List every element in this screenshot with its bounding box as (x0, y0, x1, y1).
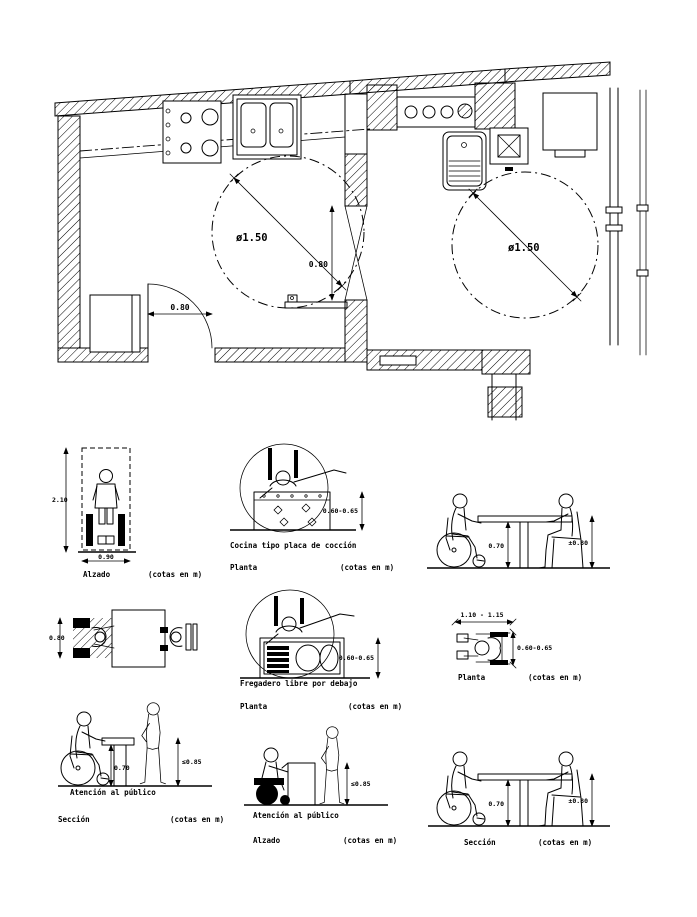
wheelchair-user (437, 752, 485, 825)
svg-text:0.70: 0.70 (488, 542, 504, 550)
open-door-leaf (285, 295, 347, 308)
figure-label: Sección (58, 815, 90, 824)
figure-label: Planta (230, 563, 258, 572)
figure-mesa-seccion-sup: 0.70 ±0.80 (422, 466, 617, 584)
units-note: (cotas en m) (343, 836, 397, 845)
standing-person (320, 727, 344, 804)
stove (163, 101, 221, 163)
svg-text:0.90: 0.90 (98, 553, 114, 561)
svg-text:2.10: 2.10 (52, 496, 68, 504)
double-sink (233, 95, 301, 159)
dim-partition-door: 0.80 (309, 206, 332, 300)
figure-label: Alzado (253, 836, 281, 845)
figure-silla-planta: 1.10 - 1.15 0.60-0.65 Planta (cotas en m… (434, 600, 619, 695)
figure-label: Sección (464, 838, 496, 847)
turning-circle-left-label: ø1.50 (236, 232, 268, 244)
grab-bar (274, 596, 278, 626)
partition-doorway (345, 206, 367, 300)
user-plan (260, 470, 346, 498)
svg-text:0.70: 0.70 (114, 764, 130, 772)
table-plan (112, 610, 165, 667)
figure-alzado: 2.10 0.90 Alzado (cotas en m) (52, 440, 237, 590)
figure-label: Planta (240, 702, 268, 711)
figure-fregadero: 0.60-0.65 Fregadero libre por debajo Pla… (236, 596, 431, 726)
counter-axis-line (80, 129, 370, 151)
seated-person (539, 752, 583, 826)
units-note: (cotas en m) (528, 673, 582, 682)
dim-door-width: 0.80 (148, 303, 212, 314)
dim-length: 1.10 - 1.15 (452, 611, 516, 625)
wheelchair-user-front (86, 470, 125, 547)
dim-depth: 0.60-0.65 (339, 638, 378, 678)
wheelchair-user (61, 712, 109, 785)
svg-text:0.80: 0.80 (49, 634, 65, 642)
appliance-left (90, 295, 140, 352)
figure-caption: Atención al público (253, 811, 339, 820)
dim-width: 0.80 (49, 618, 65, 658)
window-wall (606, 88, 648, 355)
reach-arc (240, 444, 328, 532)
seated-person (539, 494, 583, 568)
cooktop-right (397, 97, 475, 127)
dim-clearance: 0.70 (488, 522, 508, 568)
grab-bar (268, 448, 272, 480)
dim-height: ±0.80 (568, 774, 592, 826)
dim-height: ±0.80 (568, 516, 592, 568)
dim-height: ≤0.85 (178, 738, 202, 786)
figure-caption: Atención al público (70, 788, 156, 797)
units-note: (cotas en m) (170, 815, 224, 824)
svg-text:0.70: 0.70 (488, 800, 504, 808)
svg-text:0.60-0.65: 0.60-0.65 (517, 644, 552, 652)
figure-mesa-seccion-inf: 0.70 ±0.80 Sección (cotas en m) (422, 726, 617, 864)
turning-circle-right-label: ø1.50 (508, 242, 540, 254)
grab-bar (294, 450, 298, 478)
svg-text:±0.80: ±0.80 (568, 797, 588, 805)
svg-text:≤0.85: ≤0.85 (351, 780, 371, 788)
door-swing (148, 284, 212, 348)
dim-height: 2.10 (52, 448, 68, 552)
svg-text:≤0.85: ≤0.85 (182, 758, 202, 766)
wheelchair-user (437, 494, 485, 567)
units-note: (cotas en m) (538, 838, 592, 847)
svg-text:0.60-0.65: 0.60-0.65 (323, 507, 358, 515)
svg-text:1.10 - 1.15: 1.10 - 1.15 (460, 611, 503, 619)
figure-caption: Fregadero libre por debajo (240, 679, 358, 688)
sink-unit (260, 638, 344, 678)
door-width-dim: 0.80 (170, 303, 189, 312)
dim-width: 0.90 (82, 553, 130, 561)
units-note: (cotas en m) (348, 702, 402, 711)
units-note: (cotas en m) (340, 563, 394, 572)
walls (55, 62, 610, 420)
figure-atencion-alzado: ≤0.85 Atención al público Alzado (cotas … (238, 724, 423, 856)
wheelchair-plan (457, 632, 510, 665)
turning-circle-right: ø1.50 (452, 172, 598, 318)
units-note: (cotas en m) (148, 570, 202, 579)
dim-height: ≤0.85 (347, 763, 371, 805)
figure-cocina-planta: 0.60-0.65 Cocina tipo placa de cocción P… (226, 448, 421, 578)
dim-clearance: 0.70 (488, 780, 508, 826)
partition-door-dim: 0.80 (309, 260, 328, 269)
seated-person-plan (160, 624, 197, 651)
dim-depth: 0.60-0.65 (323, 492, 362, 530)
figure-caption: Cocina tipo placa de cocción (230, 541, 356, 550)
user-plan (266, 614, 354, 644)
figure-label: Alzado (83, 570, 111, 579)
fridge-right (543, 93, 597, 157)
figure-atencion-seccion: 0.70 ≤0.85 Atención al público Sección (… (52, 698, 232, 838)
svg-text:±0.80: ±0.80 (568, 539, 588, 547)
standing-person (140, 703, 165, 784)
dim-width: 0.60-0.65 (510, 629, 552, 668)
sink-right (443, 132, 486, 190)
figure-label: Planta (458, 673, 486, 682)
svg-text:0.60-0.65: 0.60-0.65 (339, 654, 374, 662)
drawing-canvas: ø1.50 0.80 0.80 (0, 0, 697, 917)
grab-bar (300, 598, 304, 624)
hob-box (490, 128, 528, 171)
wheelchair-user (254, 748, 290, 805)
cooktop-unit (254, 492, 330, 530)
turning-circle-left: ø1.50 (212, 156, 364, 308)
floor-plan: ø1.50 0.80 0.80 (40, 55, 697, 425)
figure-mesa-planta: 0.80 (48, 596, 213, 708)
